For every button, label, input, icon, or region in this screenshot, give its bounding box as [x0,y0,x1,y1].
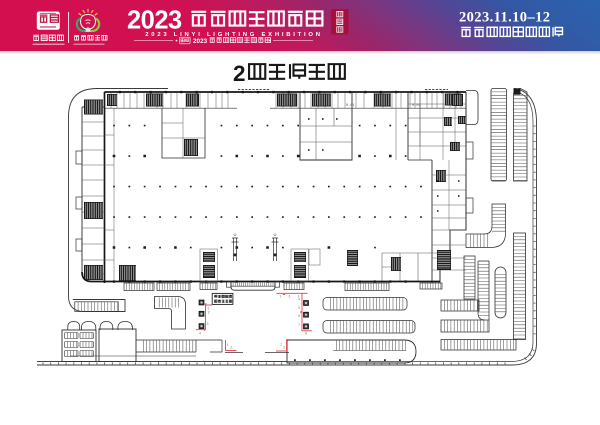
svg-text:6: 6 [298,314,300,318]
svg-text:5: 5 [298,306,300,310]
svg-text:2: 2 [289,295,291,299]
svg-text:7: 7 [298,323,300,327]
svg-text:1: 1 [279,295,281,299]
svg-text:2023 LINYI LIGHTING EXHIBIT: 2023 LINYI LIGHTING EXHIBITION [145,32,322,38]
svg-text:2023: 2023 [127,7,182,35]
svg-text:3: 3 [207,322,209,326]
svg-text:4: 4 [199,331,201,335]
svg-text:2: 2 [230,345,232,349]
svg-text:2: 2 [283,345,285,349]
svg-text:2: 2 [233,61,246,86]
svg-text:0.01: 0.01 [346,104,355,108]
svg-text:2: 2 [208,311,210,315]
svg-text:1: 1 [280,342,282,346]
svg-text:2023.11.10–12: 2023.11.10–12 [459,10,550,26]
svg-text:0.01: 0.01 [412,104,421,108]
svg-text:2023: 2023 [193,38,208,45]
svg-text:4: 4 [298,298,300,302]
svg-text:8: 8 [305,332,307,336]
svg-text:1: 1 [227,343,229,347]
